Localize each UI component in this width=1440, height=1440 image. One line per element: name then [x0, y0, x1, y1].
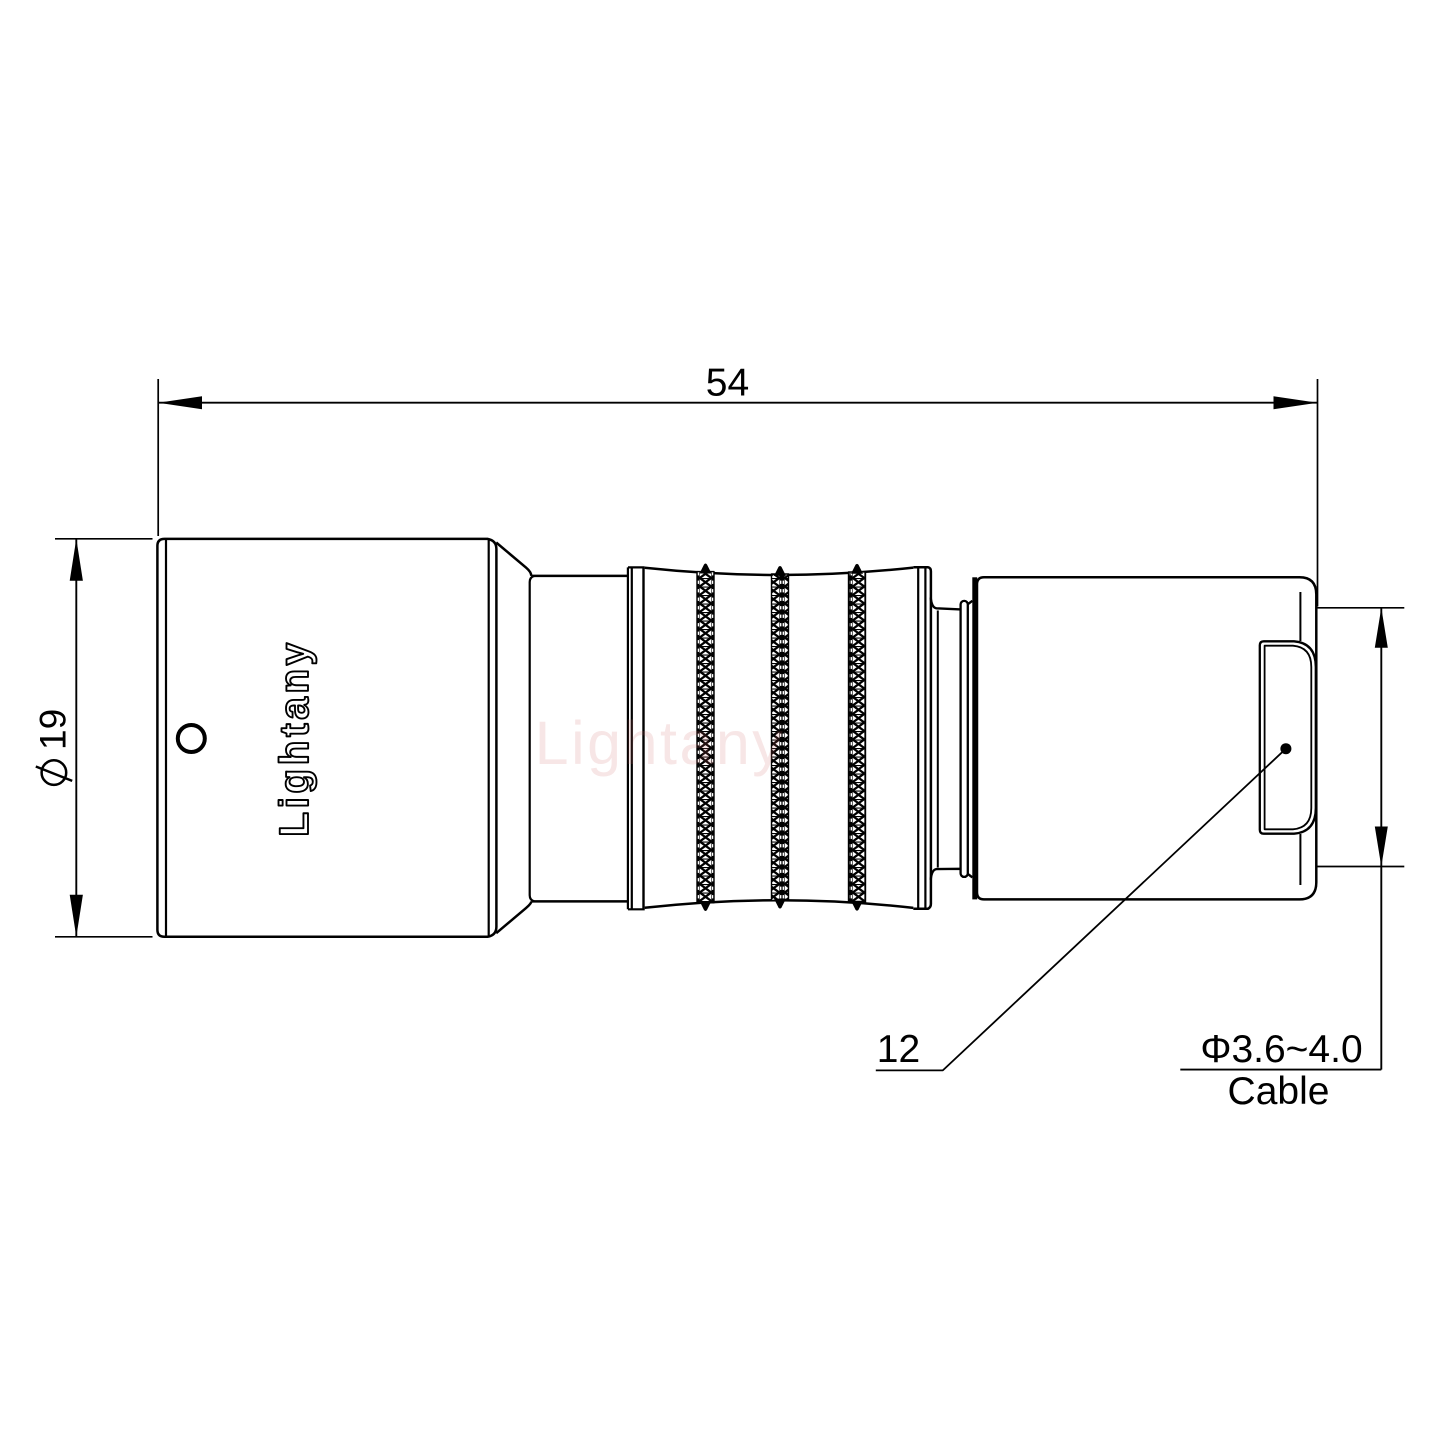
- svg-text:Φ3.6~4.0: Φ3.6~4.0: [1200, 1028, 1362, 1071]
- svg-text:54: 54: [706, 362, 749, 405]
- svg-text:12: 12: [877, 1028, 920, 1071]
- svg-text:19: 19: [33, 709, 74, 750]
- svg-text:Lightany: Lightany: [271, 639, 317, 837]
- svg-text:Cable: Cable: [1228, 1070, 1330, 1113]
- svg-text:Lightany: Lightany: [535, 709, 786, 777]
